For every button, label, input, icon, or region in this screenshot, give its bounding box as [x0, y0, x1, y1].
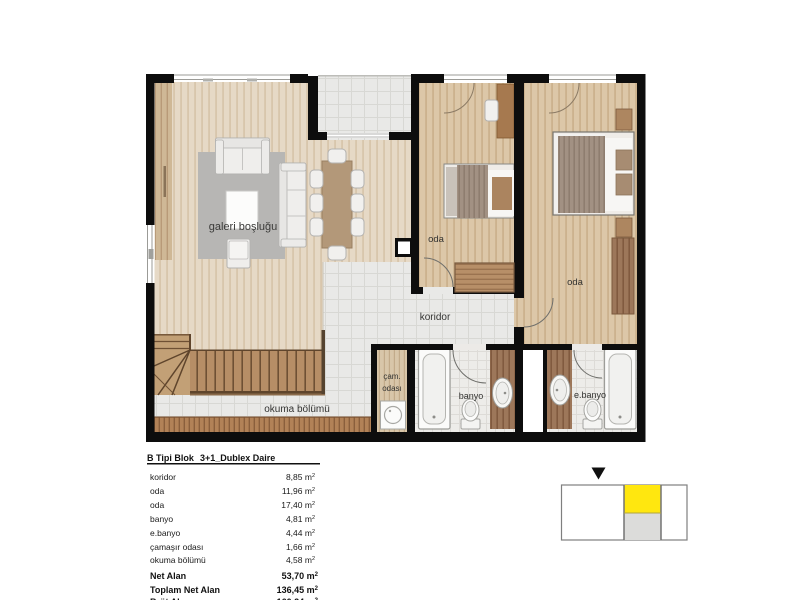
svg-text:3+1_Dublex Daire: 3+1_Dublex Daire — [200, 453, 275, 463]
svg-text:koridor: koridor — [420, 312, 451, 323]
svg-text:e.banyo: e.banyo — [150, 528, 181, 538]
svg-text:banyo: banyo — [459, 391, 484, 401]
svg-text:4,81 m2: 4,81 m2 — [286, 514, 315, 524]
svg-text:okuma bölümü: okuma bölümü — [150, 555, 206, 565]
svg-text:oda: oda — [150, 486, 164, 496]
svg-text:17,40 m2: 17,40 m2 — [281, 500, 315, 510]
svg-text:Toplam Net Alan: Toplam Net Alan — [150, 585, 220, 595]
svg-text:Net Alan: Net Alan — [150, 571, 186, 581]
svg-text:okuma bölümü: okuma bölümü — [264, 404, 330, 415]
svg-text:11,96 m2: 11,96 m2 — [282, 486, 315, 496]
svg-text:oda: oda — [428, 234, 445, 245]
svg-text:8,85 m2: 8,85 m2 — [286, 472, 315, 482]
svg-text:çam.: çam. — [383, 372, 400, 381]
svg-text:B Tipi Blok: B Tipi Blok — [147, 453, 195, 463]
svg-text:koridor: koridor — [150, 472, 176, 482]
svg-text:oda: oda — [567, 277, 584, 288]
svg-text:136,45 m2: 136,45 m2 — [277, 585, 319, 595]
svg-text:odası: odası — [382, 384, 402, 393]
svg-text:4,44 m2: 4,44 m2 — [286, 528, 315, 538]
svg-text:53,70 m2: 53,70 m2 — [282, 571, 319, 581]
svg-text:4,58 m2: 4,58 m2 — [286, 555, 315, 565]
svg-text:e.banyo: e.banyo — [574, 390, 606, 400]
svg-text:1,66 m2: 1,66 m2 — [286, 542, 315, 552]
svg-text:oda: oda — [150, 500, 164, 510]
svg-text:banyo: banyo — [150, 514, 173, 524]
svg-text:çamaşır odası: çamaşır odası — [150, 542, 203, 552]
svg-text:galeri boşluğu: galeri boşluğu — [209, 221, 278, 233]
